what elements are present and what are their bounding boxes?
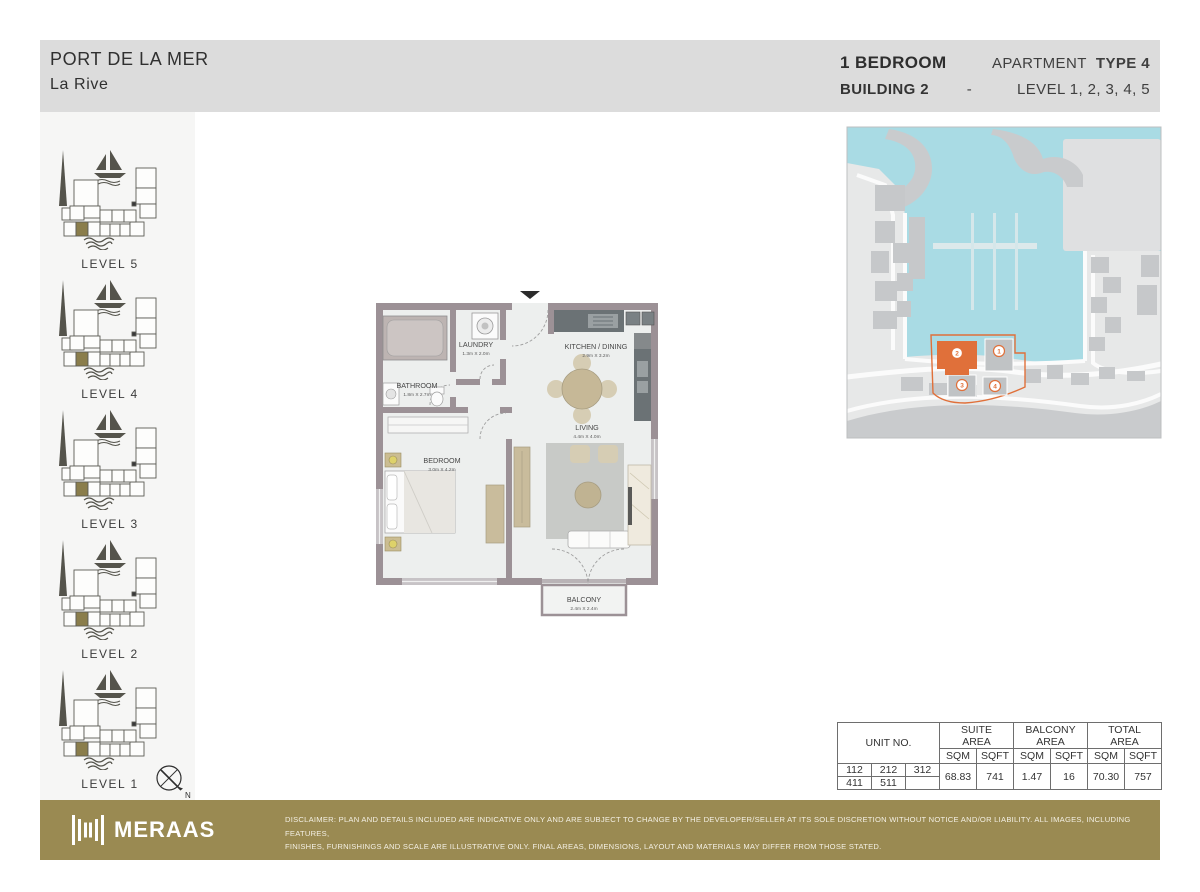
waves-icon — [84, 498, 114, 510]
site-map: 1 2 3 4 — [845, 125, 1163, 445]
building-footprint — [62, 558, 156, 626]
meraas-logo-icon — [70, 813, 106, 847]
waves-icon — [84, 628, 114, 640]
sailboat-icon — [94, 670, 126, 706]
disclaimer: DISCLAIMER: PLAN AND DETAILS INCLUDED AR… — [285, 813, 1155, 854]
levels-label: LEVEL 1, 2, 3, 4, 5 — [992, 81, 1150, 98]
waves-icon — [84, 368, 114, 380]
room-label-kitchen: KITCHEN / DINING — [565, 342, 628, 351]
sofa — [568, 531, 630, 548]
room-label-laundry: LAUNDRY — [459, 340, 493, 349]
waves-icon — [84, 238, 114, 250]
total-area-header: TOTAL AREA — [1088, 723, 1162, 749]
compass-north-label: N — [185, 791, 191, 800]
unit-no-header: UNIT NO. — [838, 723, 940, 764]
brand-name: MERAAS — [114, 817, 215, 843]
room-dims-laundry: 1.3m X 2.0m — [462, 351, 489, 357]
level-diagram: LEVEL 5 — [48, 146, 172, 271]
room-label-bedroom: BEDROOM — [423, 456, 460, 465]
project-subtitle: La Rive — [50, 76, 209, 94]
level-footprint-svg — [48, 666, 172, 770]
sailboat-icon — [94, 410, 126, 446]
floor-plan-svg: LAUNDRY 1.3m X 2.0m BATHROOM 1.8m X 2.7m… — [372, 289, 670, 623]
marker-3: 3 — [960, 383, 964, 390]
level-label: LEVEL 4 — [48, 387, 172, 401]
level-footprint-svg — [48, 536, 172, 640]
building-footprint — [62, 688, 156, 756]
balcony-sqft-value: 16 — [1051, 764, 1088, 790]
level-diagram: LEVEL 3 — [48, 406, 172, 531]
sqm-header: SQM — [940, 749, 977, 764]
sqm-header: SQM — [1088, 749, 1125, 764]
disclaimer-line2: FINISHES, FURNISHINGS AND SCALE ARE ILLU… — [285, 840, 1155, 854]
tower-icon — [59, 410, 67, 466]
marker-2: 2 — [955, 351, 959, 358]
total-sqft-value: 757 — [1125, 764, 1162, 790]
level-diagram: LEVEL 4 — [48, 276, 172, 401]
level-footprint-svg — [48, 276, 172, 380]
level-footprint-svg — [48, 146, 172, 250]
room-dims-kitchen: 2.9m X 3.2m — [582, 353, 609, 359]
unit-cell: 212 — [872, 764, 906, 777]
compass-icon: N — [152, 762, 198, 804]
unit-type: 1 BEDROOM — [840, 53, 947, 73]
bathtub — [383, 316, 447, 360]
floor-plan-page: PORT DE LA MER La Rive 1 BEDROOM APARTME… — [0, 0, 1200, 892]
bedroom-wardrobe — [486, 485, 504, 543]
unit-cell: 112 — [838, 764, 872, 777]
building-footprint — [62, 428, 156, 496]
room-label-living: LIVING — [575, 423, 599, 432]
building-footprint — [62, 298, 156, 366]
waves-icon — [84, 758, 114, 770]
bed — [385, 471, 455, 533]
room-dims-living: 4.4m X 4.0m — [573, 434, 600, 440]
unit-cell: 411 — [838, 777, 872, 790]
entry-arrow-icon — [520, 291, 540, 299]
balcony-area-header: BALCONY AREA — [1014, 723, 1088, 749]
marker-1: 1 — [997, 349, 1001, 356]
apartment-type: APARTMENT TYPE 4 — [992, 55, 1150, 72]
level-label: LEVEL 2 — [48, 647, 172, 661]
room-label-bathroom: BATHROOM — [397, 381, 438, 390]
unit-cell: 312 — [906, 764, 940, 777]
total-sqm-value: 70.30 — [1088, 764, 1125, 790]
room-dims-bedroom: 3.0m X 4.2m — [428, 467, 455, 473]
sailboat-icon — [94, 280, 126, 316]
level-label: LEVEL 3 — [48, 517, 172, 531]
type-label: TYPE 4 — [1096, 55, 1150, 72]
building-footprint — [62, 168, 156, 236]
header-left: PORT DE LA MER La Rive — [50, 49, 209, 94]
room-label-balcony: BALCONY — [567, 595, 602, 604]
area-table: UNIT NO. SUITE AREA BALCONY AREA TOTAL A… — [837, 722, 1162, 790]
coffee-table — [575, 482, 601, 508]
tower-icon — [59, 280, 67, 336]
sidebar-levels: LEVEL 5 — [40, 112, 195, 791]
dresser — [388, 417, 468, 433]
disclaimer-line1: DISCLAIMER: PLAN AND DETAILS INCLUDED AR… — [285, 813, 1155, 840]
sidebar: LEVEL 5 — [40, 112, 195, 800]
tower-icon — [59, 540, 67, 596]
suite-sqft-value: 741 — [977, 764, 1014, 790]
sqft-header: SQFT — [1051, 749, 1088, 764]
tower-icon — [59, 150, 67, 206]
tower-icon — [59, 670, 67, 726]
sailboat-icon — [94, 540, 126, 576]
tv-unit — [628, 465, 651, 545]
brand: MERAAS — [70, 813, 215, 847]
site-map-svg: 1 2 3 4 — [845, 125, 1163, 440]
header-right: 1 BEDROOM APARTMENT TYPE 4 BUILDING 2 - … — [840, 53, 1150, 98]
sailboat-icon — [94, 150, 126, 186]
level-label: LEVEL 5 — [48, 257, 172, 271]
marker-4: 4 — [993, 384, 997, 391]
footer-bar: MERAAS DISCLAIMER: PLAN AND DETAILS INCL… — [40, 800, 1160, 860]
separator: - — [947, 81, 992, 98]
room-dims-bathroom: 1.8m X 2.7m — [403, 392, 430, 398]
header-band: PORT DE LA MER La Rive 1 BEDROOM APARTME… — [40, 40, 1160, 112]
room-dims-balcony: 2.4m X 2.4m — [570, 606, 597, 612]
unit-cell — [906, 777, 940, 790]
sqm-header: SQM — [1014, 749, 1051, 764]
washing-machine — [472, 313, 498, 339]
suite-sqm-value: 68.83 — [940, 764, 977, 790]
unit-cell: 511 — [872, 777, 906, 790]
project-title: PORT DE LA MER — [50, 49, 209, 70]
balcony-sqm-value: 1.47 — [1014, 764, 1051, 790]
level-footprint-svg — [48, 406, 172, 510]
apartment-label: APARTMENT — [992, 55, 1087, 72]
sqft-header: SQFT — [1125, 749, 1162, 764]
level-diagram: LEVEL 2 — [48, 536, 172, 661]
sqft-header: SQFT — [977, 749, 1014, 764]
suite-area-header: SUITE AREA — [940, 723, 1014, 749]
building-label: BUILDING 2 — [840, 81, 947, 98]
floor-plan: LAUNDRY 1.3m X 2.0m BATHROOM 1.8m X 2.7m… — [372, 289, 670, 628]
